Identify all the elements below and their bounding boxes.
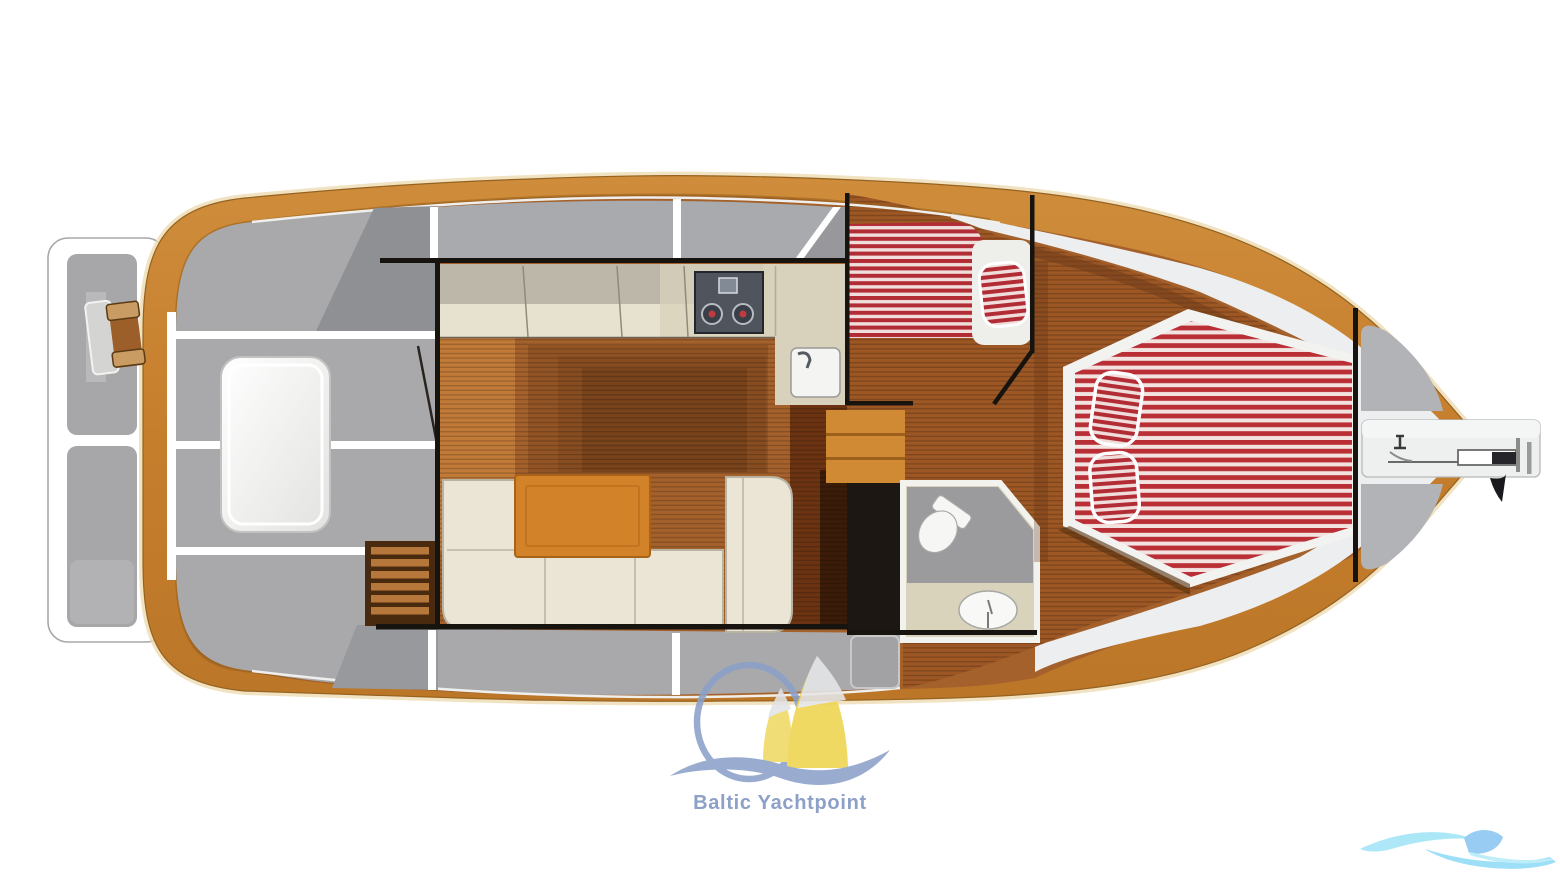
svg-text:Baltic Yachtpoint: Baltic Yachtpoint: [693, 792, 867, 814]
